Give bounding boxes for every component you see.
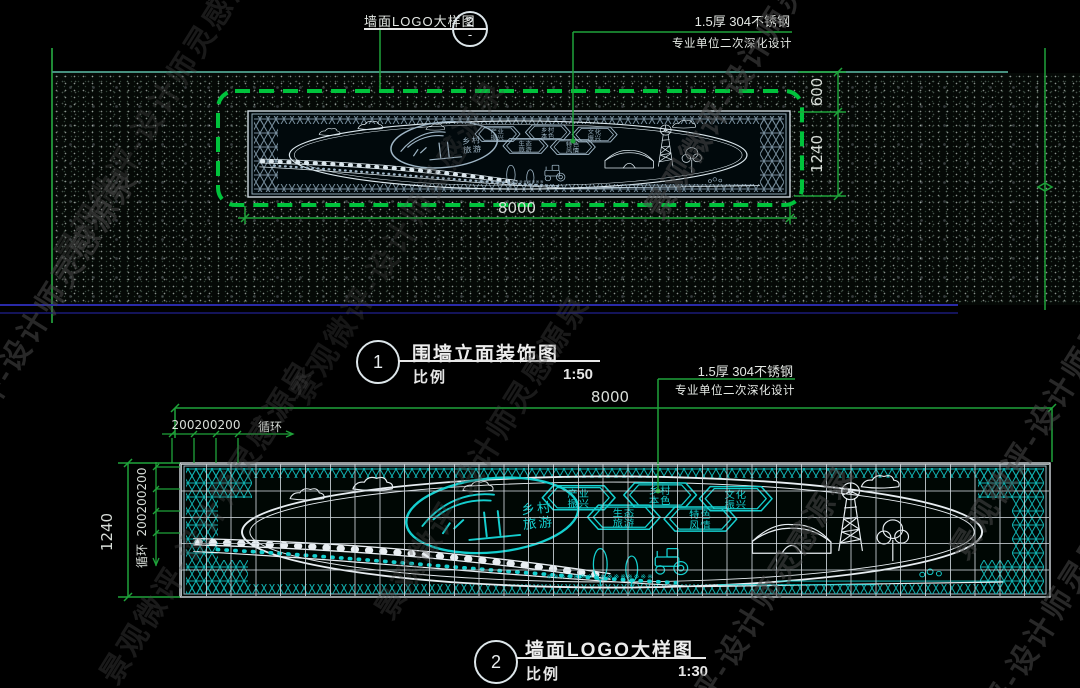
callout-bubble-sub: - <box>454 28 486 41</box>
title1-number: 1 <box>358 342 398 382</box>
dim-module-1: 200 <box>172 418 195 432</box>
annotation2-line2: 专业单位二次深化设计 <box>659 382 795 398</box>
title2-scale-label: 比例 <box>526 663 560 684</box>
title1-bubble: 1 <box>356 340 400 384</box>
annotation2-line1: 1.5厚 304不锈钢 <box>661 361 793 380</box>
title1-scale-value: 1:50 <box>563 366 593 383</box>
dim-modules-vertical <box>153 462 180 566</box>
dim-8000-bottom <box>171 404 1056 462</box>
callout-bubble: 2 - <box>452 11 488 47</box>
title1-underline <box>398 360 600 362</box>
title2-number: 2 <box>476 642 516 682</box>
annotation1-line2: 专业单位二次深化设计 <box>656 35 792 51</box>
title2-underline <box>516 657 706 659</box>
dim1-offset-value: 600 <box>808 78 826 107</box>
title2-scale-value: 1:30 <box>678 663 708 680</box>
right-extension-line <box>1038 48 1052 310</box>
dim-cycle-label-h: 循环 <box>258 420 282 434</box>
dim-cycle-label-v: 循环 <box>135 544 149 568</box>
dim1-width-value: 8000 <box>498 199 536 217</box>
dim2-width-value: 8000 <box>591 388 629 406</box>
dim-module-2: 200 <box>195 418 218 432</box>
dim-1240-bottom <box>118 459 180 601</box>
dim-modules-horizontal <box>162 431 293 463</box>
dim-vmodule-2: 200 <box>135 491 149 514</box>
dim-vmodule-1: 200 <box>135 468 149 491</box>
drawing1-elevation: 8000 600 1240 <box>0 30 1052 323</box>
dim2-height-value: 1240 <box>98 513 116 551</box>
cad-canvas: 乡村 旅游 产业 振兴 乡村 本色 <box>0 0 1080 688</box>
annotation1-line1: 1.5厚 304不锈钢 <box>658 11 790 30</box>
dim1-height-value: 1240 <box>808 135 826 173</box>
dim-vmodule-3: 200 <box>135 514 149 537</box>
drawing2-logo-detail: 8000 200 200 200 循环 <box>98 379 1056 601</box>
title2-bubble: 2 <box>474 640 518 684</box>
title1-scale-label: 比例 <box>413 366 447 387</box>
dim-module-3: 200 <box>218 418 241 432</box>
